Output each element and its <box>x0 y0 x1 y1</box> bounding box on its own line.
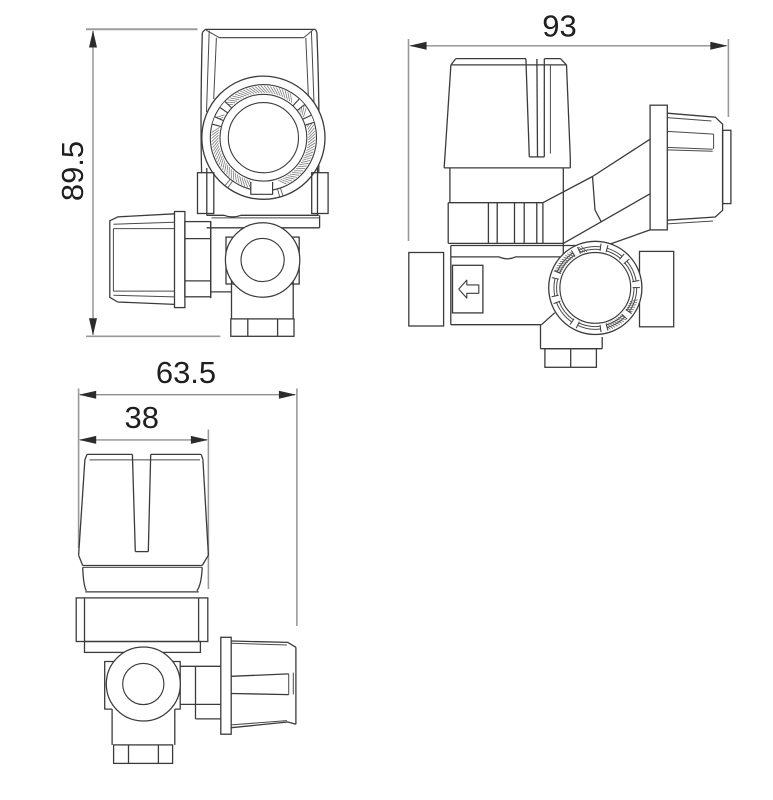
svg-text:93: 93 <box>542 9 576 44</box>
svg-text:89.5: 89.5 <box>55 141 90 201</box>
svg-text:63.5: 63.5 <box>156 355 216 390</box>
svg-text:38: 38 <box>125 400 159 435</box>
